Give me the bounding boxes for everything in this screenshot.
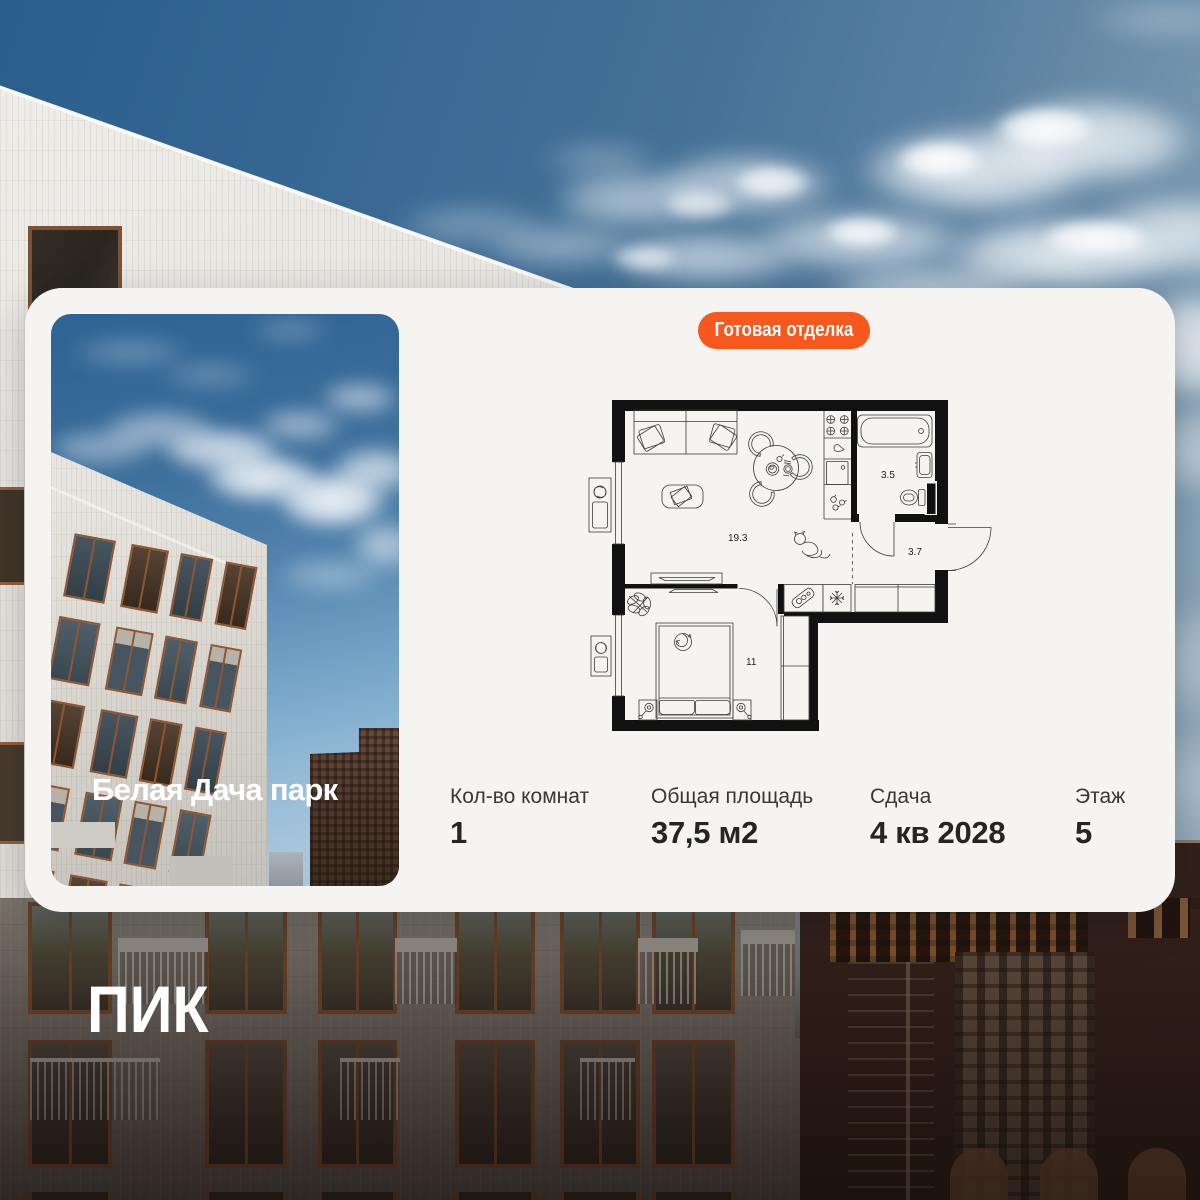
svg-text:3.5: 3.5: [881, 470, 895, 481]
svg-text:3.7: 3.7: [908, 547, 922, 558]
svg-text:19.3: 19.3: [728, 533, 748, 544]
svg-text:11: 11: [746, 657, 757, 668]
